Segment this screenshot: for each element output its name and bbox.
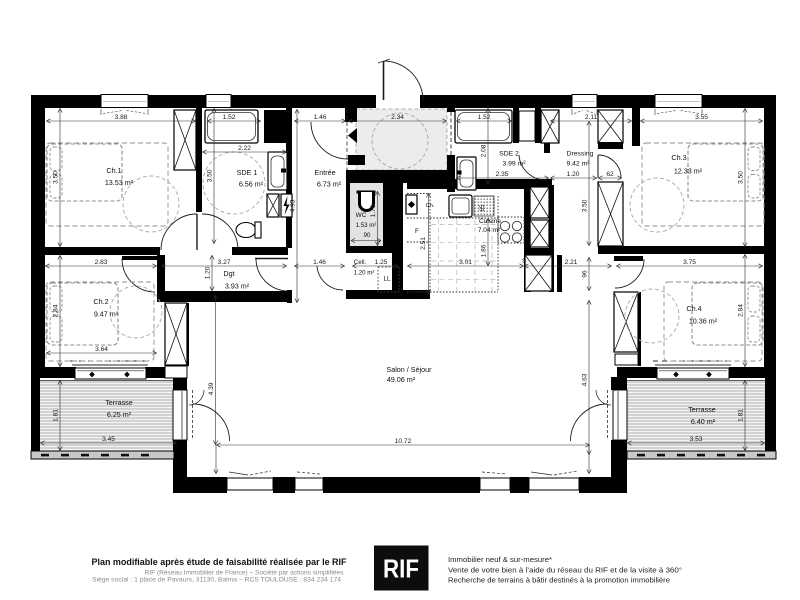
svg-text:3.64: 3.64 [95,346,108,353]
svg-text:1.81: 1.81 [738,409,745,422]
svg-text:6.56 m²: 6.56 m² [239,180,264,189]
svg-text:Immobilier neuf & sur-mesure*: Immobilier neuf & sur-mesure* [448,555,552,564]
svg-text:SDE 2: SDE 2 [499,151,519,158]
svg-text:2.83: 2.83 [95,259,108,266]
svg-text:RIF: RIF [383,554,419,584]
svg-text:F: F [415,228,419,235]
svg-text:1.25: 1.25 [375,259,388,266]
svg-text:Ch.2: Ch.2 [93,297,108,306]
svg-text:3.50: 3.50 [738,171,745,184]
svg-text:S: S [522,259,526,265]
svg-text:2.21: 2.21 [565,259,578,266]
svg-text:6.25 m²: 6.25 m² [107,410,132,419]
svg-text:2.35: 2.35 [496,171,509,178]
svg-text:Ch.4: Ch.4 [686,304,701,313]
svg-text:2.34: 2.34 [391,114,404,121]
svg-text:Terrasse: Terrasse [105,398,133,407]
svg-text:3.88: 3.88 [115,114,128,121]
svg-text:1.86: 1.86 [481,244,488,257]
svg-text:3.55: 3.55 [695,114,708,121]
svg-text:90: 90 [364,232,371,239]
svg-text:Ch.1: Ch.1 [106,166,121,175]
svg-text:4.63: 4.63 [582,373,589,386]
svg-text:3.53: 3.53 [690,436,703,443]
svg-text:3.50: 3.50 [53,171,60,184]
svg-text:1.52: 1.52 [223,114,236,121]
svg-text:Dgt: Dgt [223,269,234,278]
svg-text:3.93 m²: 3.93 m² [225,282,250,291]
svg-text:10.72: 10.72 [395,438,412,445]
svg-text:2.84: 2.84 [53,304,60,317]
svg-text:3.50: 3.50 [207,169,214,182]
svg-text:WC: WC [356,212,367,219]
svg-text:SDE 1: SDE 1 [237,168,258,177]
svg-text:2.22: 2.22 [238,145,251,152]
svg-text:1.81: 1.81 [53,409,60,422]
svg-text:4.93: 4.93 [290,199,297,212]
svg-text:1.70: 1.70 [370,204,377,217]
svg-text:Salon / Séjour: Salon / Séjour [386,365,432,374]
svg-text:1.46: 1.46 [314,114,327,121]
svg-text:3.45: 3.45 [102,436,115,443]
svg-text:3.50: 3.50 [582,199,589,212]
svg-text:1.20: 1.20 [567,171,580,178]
svg-text:62: 62 [606,171,614,178]
svg-text:1.46: 1.46 [313,259,326,266]
svg-text:2.11: 2.11 [585,114,598,121]
svg-text:Vente de votre bien à l’aide d: Vente de votre bien à l’aide du réseau d… [448,566,682,575]
svg-text:6.73 m²: 6.73 m² [317,180,342,189]
svg-text:3.01: 3.01 [459,259,472,266]
svg-text:LL: LL [384,276,391,283]
svg-text:12.33 m²: 12.33 m² [674,167,703,176]
svg-text:9.42 m²: 9.42 m² [566,161,590,168]
svg-text:Dressing: Dressing [567,151,594,158]
svg-text:Siège social : 1 place de Pava: Siège social : 1 place de Pavaurs, 31130… [92,577,342,584]
svg-text:RIF (Réseau Immobilier de Fran: RIF (Réseau Immobilier de France) – Soci… [145,570,344,577]
svg-text:2.08: 2.08 [481,144,488,157]
svg-text:3.75: 3.75 [683,259,696,266]
svg-text:3.27: 3.27 [218,259,231,266]
svg-text:3.99 m²: 3.99 m² [502,161,526,168]
svg-text:7.04 m²: 7.04 m² [478,227,501,234]
svg-text:9.47 m²: 9.47 m² [94,310,119,319]
svg-text:1.52: 1.52 [478,114,491,121]
svg-text:Recherche de terrains à bâtir: Recherche de terrains à bâtir destinés à… [448,576,670,585]
svg-text:Cell.: Cell. [354,259,367,266]
svg-text:1.53 m²: 1.53 m² [356,222,377,229]
svg-text:Cuisine: Cuisine [479,218,501,225]
svg-text:96: 96 [582,270,589,278]
svg-text:Ch.: Ch. [425,203,434,209]
svg-text:2.84: 2.84 [738,304,745,317]
svg-text:Entrée: Entrée [314,168,335,177]
svg-text:1.20 m²: 1.20 m² [354,270,375,277]
svg-text:Plan modifiable après étude de: Plan modifiable après étude de faisabili… [92,557,347,568]
svg-text:Terrasse: Terrasse [688,405,716,414]
svg-text:65: 65 [479,204,486,211]
svg-text:10.36 m²: 10.36 m² [689,317,718,326]
svg-text:6.40 m²: 6.40 m² [691,417,716,426]
svg-text:49.06 m²: 49.06 m² [387,375,416,384]
svg-text:Ch.3: Ch.3 [671,153,686,162]
svg-text:13.53 m²: 13.53 m² [105,178,134,187]
svg-text:1.20: 1.20 [205,266,212,279]
svg-text:2.51: 2.51 [420,237,427,250]
svg-text:4.39: 4.39 [208,382,215,395]
